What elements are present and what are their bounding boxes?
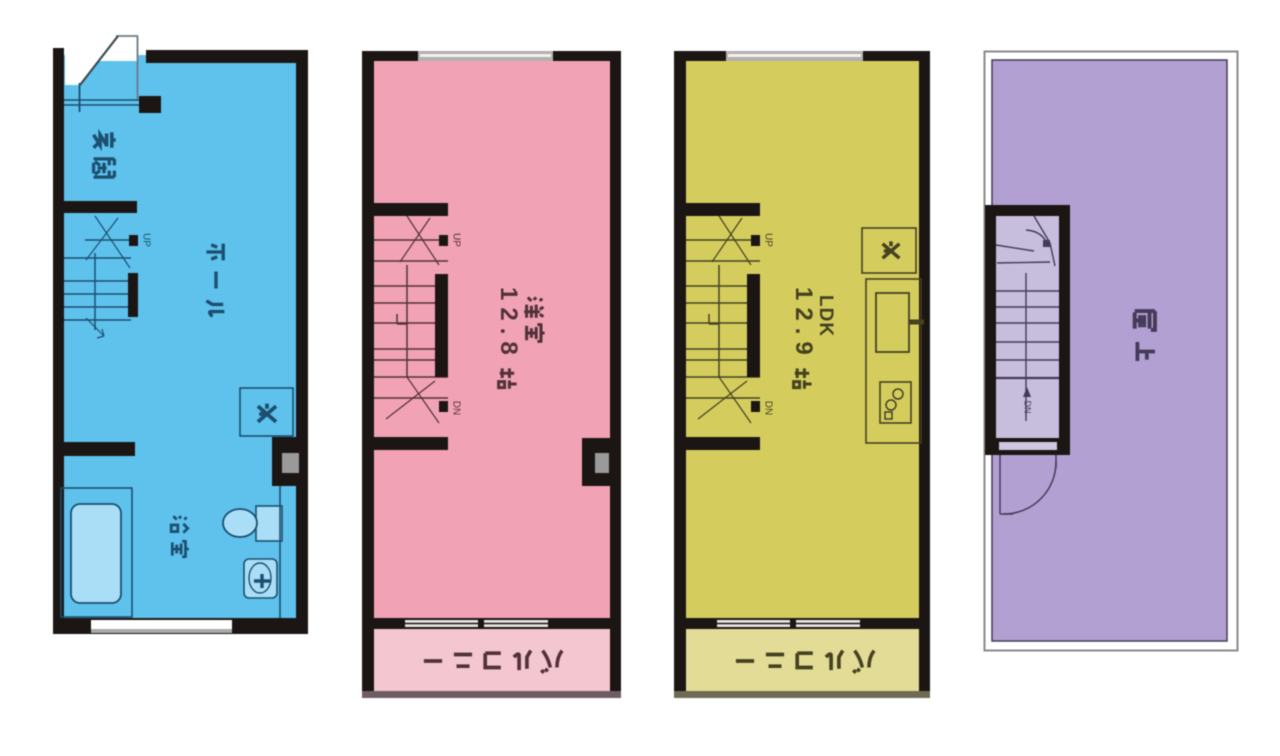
svg-text:DN: DN [450,401,461,415]
svg-text:LDK: LDK [815,295,836,337]
svg-text:UP: UP [450,233,461,247]
svg-text:UP: UP [762,233,773,247]
svg-text:UP: UP [140,233,151,247]
svg-text:12.9: 12.9 [790,287,817,362]
svg-text:12.8: 12.8 [495,287,522,362]
svg-text:DN: DN [1023,401,1033,414]
svg-text:DN: DN [762,401,773,415]
